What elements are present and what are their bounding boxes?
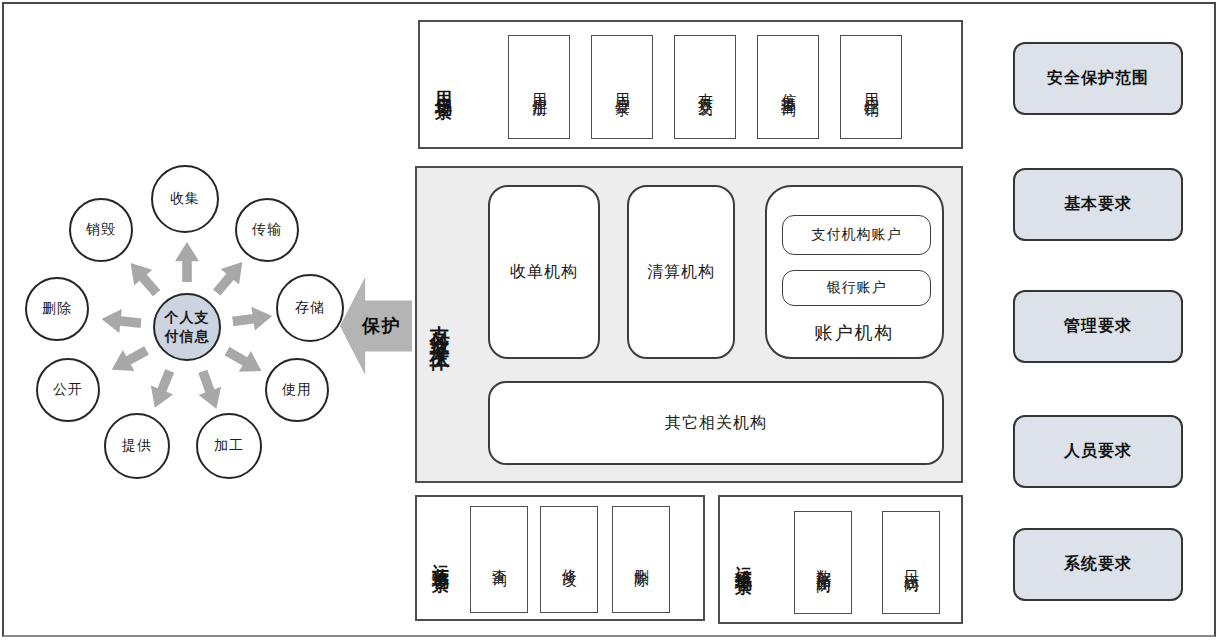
scenario-box-user-login: 用户登录: [591, 35, 653, 139]
radial-arrow-up-left-icon: [122, 255, 166, 301]
lifecycle-circle-collect: 收集: [151, 165, 219, 233]
center-circle-label: 个人支付信息: [163, 308, 211, 346]
payment-info-security-diagram: 收集 传输 存储 使用 加工 提供 公开 删除 销毁 个人支付信息 保护 用户场…: [0, 0, 1220, 643]
lifecycle-circle-delete: 删除: [25, 277, 89, 341]
radial-arrow-down-left-icon: [106, 340, 153, 380]
payment-institution-account-box: 支付机构账户: [782, 215, 931, 255]
operation-box-query: 查询: [470, 506, 528, 613]
operation-box-delete: 删除: [612, 506, 670, 613]
lifecycle-circle-process: 加工: [196, 413, 262, 479]
requirement-box-management: 管理要求: [1013, 290, 1183, 363]
requirement-system-label: 系统要求: [1064, 554, 1132, 575]
maintenance-box-log-access: 日志访问: [882, 511, 940, 614]
lifecycle-circle-disclose-label: 公开: [53, 381, 83, 399]
scenario-box-user-login-label: 用户登录: [613, 81, 632, 93]
scenario-box-user-deregister: 用户注销: [840, 35, 902, 139]
scenario-box-info-query-label: 信息查询: [779, 81, 798, 93]
operation-box-modify-label: 修改: [560, 557, 579, 563]
bank-account-box: 银行账户: [782, 270, 931, 306]
acquirer-box-label: 收单机构: [510, 262, 578, 283]
requirement-box-system: 系统要求: [1013, 528, 1183, 601]
lifecycle-circle-provide-label: 提供: [122, 437, 152, 455]
lifecycle-circle-provide: 提供: [104, 413, 170, 479]
operation-box-modify: 修改: [540, 506, 598, 613]
requirement-box-security-protection-scope: 安全保护范围: [1013, 42, 1183, 115]
scenario-box-user-register-label: 用户注册: [530, 81, 549, 93]
other-institutions-box: 其它相关机构: [488, 381, 944, 465]
protect-arrow-label: 保护: [352, 277, 412, 375]
account-institution-group: 支付机构账户 银行账户 账户机构: [765, 185, 944, 359]
acquirer-box: 收单机构: [488, 185, 600, 359]
lifecycle-circle-transmit: 传输: [235, 198, 299, 262]
payment-entities-label: 支付业务主体: [427, 310, 454, 340]
payment-institution-account-label: 支付机构账户: [812, 226, 902, 244]
maintenance-box-database-access-label: 数据库访问: [814, 558, 833, 568]
radial-arrow-up-icon: [175, 242, 199, 282]
center-circle-personal-payment-info: 个人支付信息: [153, 293, 221, 361]
requirement-personnel-label: 人员要求: [1064, 441, 1132, 462]
clearing-box: 清算机构: [627, 185, 735, 359]
radial-arrow-up-right-icon: [207, 254, 251, 300]
lifecycle-diagram: 收集 传输 存储 使用 加工 提供 公开 删除 销毁 个人支付信息 保护: [0, 0, 415, 643]
lifecycle-circle-store: 存储: [276, 274, 344, 342]
lifecycle-circle-delete-label: 删除: [42, 300, 72, 318]
maintenance-box-log-access-label: 日志访问: [902, 559, 921, 567]
scenario-box-user-register: 用户注册: [508, 35, 570, 139]
requirement-security-protection-scope-label: 安全保护范围: [1047, 68, 1149, 89]
requirement-box-personnel: 人员要求: [1013, 415, 1183, 488]
other-institutions-label: 其它相关机构: [665, 413, 767, 434]
operation-box-query-label: 查询: [490, 557, 509, 563]
payment-entities-section: 支付业务主体 收单机构 清算机构 支付机构账户 银行账户 账户机构 其它相关机构: [415, 166, 963, 483]
requirement-basic-label: 基本要求: [1064, 194, 1132, 215]
lifecycle-circle-disclose: 公开: [36, 358, 100, 422]
bank-account-label: 银行账户: [827, 279, 887, 297]
lifecycle-circle-destroy-label: 销毁: [86, 221, 116, 239]
scenario-box-user-deregister-label: 用户注销: [862, 81, 881, 93]
radial-arrow-left-icon: [100, 307, 142, 335]
radial-arrow-down-right-icon: [221, 341, 268, 382]
requirement-management-label: 管理要求: [1064, 316, 1132, 337]
radial-arrow-down-right2-icon: [191, 367, 227, 413]
operation-scenarios-section: 运营场景 查询 修改 删除: [415, 495, 705, 621]
clearing-box-label: 清算机构: [647, 262, 715, 283]
scenario-box-info-query: 信息查询: [757, 35, 819, 139]
maintenance-scenarios-label: 运维场景: [732, 552, 755, 568]
requirement-box-basic: 基本要求: [1013, 168, 1183, 241]
scenario-box-payment-transaction: 支付交易: [674, 35, 736, 139]
scenario-box-payment-transaction-label: 支付交易: [696, 81, 715, 93]
user-scenarios-label: 用户场景: [432, 77, 455, 93]
maintenance-scenarios-section: 运维场景 数据库访问 日志访问: [718, 495, 963, 624]
account-institution-label: 账户机构: [767, 321, 942, 345]
maintenance-box-database-access: 数据库访问: [794, 511, 852, 614]
lifecycle-circle-collect-label: 收集: [170, 190, 200, 208]
lifecycle-circle-destroy: 销毁: [69, 198, 133, 262]
lifecycle-circle-process-label: 加工: [214, 437, 244, 455]
lifecycle-circle-transmit-label: 传输: [252, 221, 282, 239]
lifecycle-circle-store-label: 存储: [295, 299, 325, 317]
lifecycle-circle-use: 使用: [265, 358, 329, 422]
operation-scenarios-label: 运营场景: [429, 550, 452, 566]
radial-arrow-right-icon: [231, 304, 274, 333]
lifecycle-circle-use-label: 使用: [282, 381, 312, 399]
operation-box-delete-label: 删除: [632, 557, 651, 563]
radial-arrow-down-left2-icon: [144, 366, 181, 412]
user-scenarios-section: 用户场景 用户注册 用户登录 支付交易 信息查询 用户注销: [418, 20, 963, 149]
